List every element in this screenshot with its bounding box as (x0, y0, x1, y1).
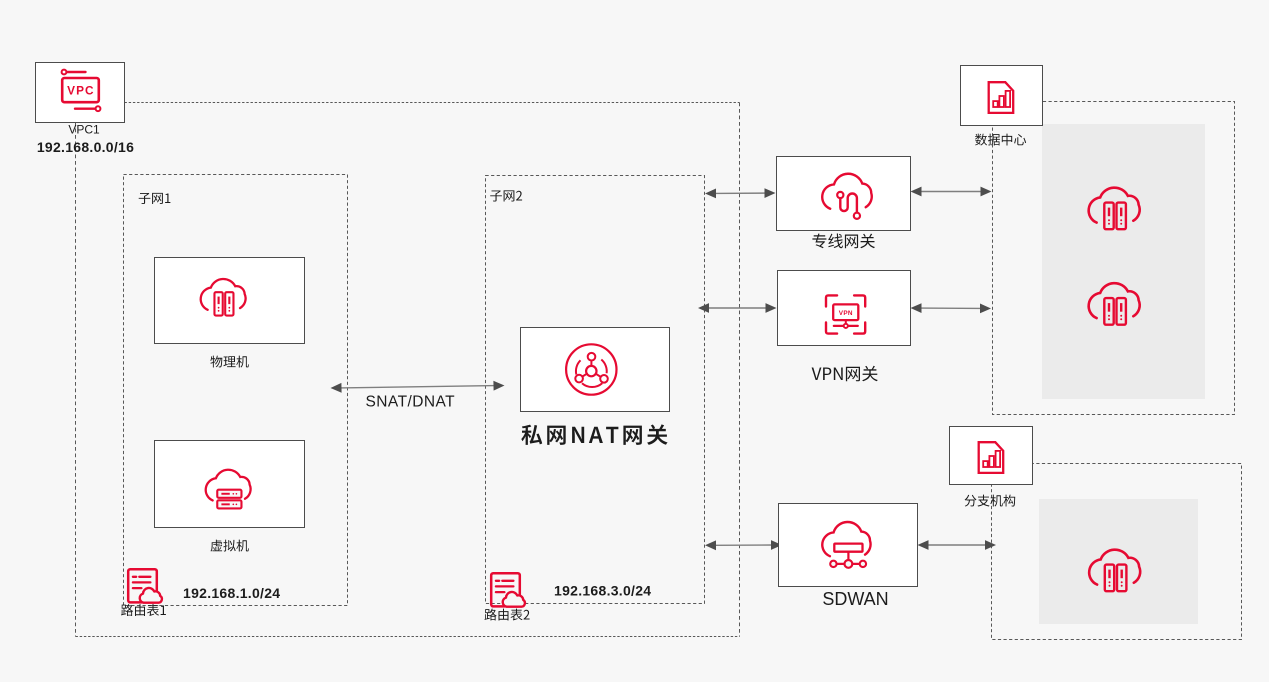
svg-text:VPC1: VPC1 (68, 123, 100, 137)
svg-text:SNAT/DNAT: SNAT/DNAT (366, 394, 456, 411)
svg-text:VPN: VPN (839, 310, 853, 317)
svg-text:VPC: VPC (67, 84, 95, 98)
svg-text:192.168.3.0/24: 192.168.3.0/24 (554, 583, 651, 599)
svg-text:SDWAN: SDWAN (822, 589, 888, 609)
svg-text:192.168.0.0/16: 192.168.0.0/16 (37, 139, 134, 155)
svg-text:192.168.1.0/24: 192.168.1.0/24 (183, 585, 280, 601)
